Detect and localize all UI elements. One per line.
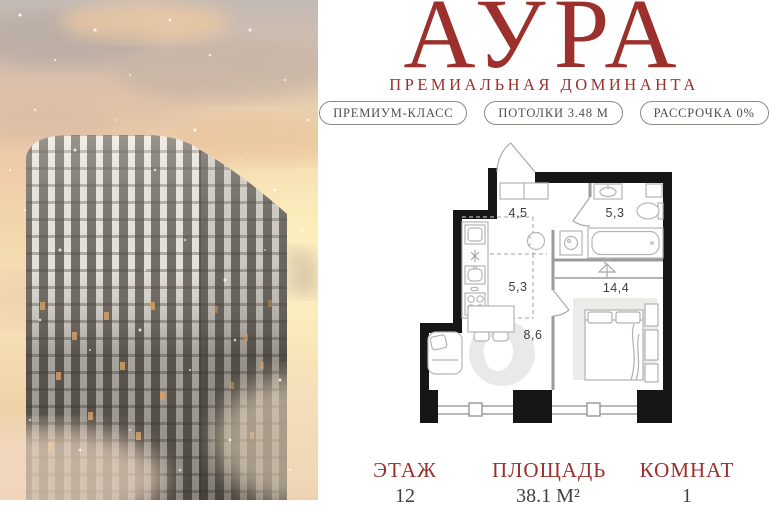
feature-badges: ПРЕМИУМ-КЛАСС ПОТОЛКИ 3.48 М РАССРОЧКА 0… [318, 101, 770, 125]
bathtub [588, 228, 663, 258]
window-left [438, 403, 513, 416]
unit-stats: ЭТАЖ 12 ПЛОЩАДЬ 38.1 М² КОМНАТ 1 [318, 458, 770, 508]
kitchen-sink [465, 266, 485, 284]
room-label-kitchen: 5,3 [509, 280, 528, 294]
bedside-shelves [645, 304, 658, 382]
duct-shaft [646, 184, 662, 197]
building-render-image [0, 0, 318, 500]
bed [585, 310, 643, 380]
stat-rooms-label: КОМНАТ [604, 458, 770, 482]
badge-ceilings: ПОТОЛКИ 3.48 М [484, 101, 622, 125]
ad-content: АУРА ПРЕМИАЛЬНАЯ ДОМИНАНТА ПРЕМИУМ-КЛАСС… [318, 0, 770, 500]
project-title: АУРА [318, 0, 770, 84]
hall-basin [528, 233, 545, 250]
bedroom-door [553, 290, 569, 316]
stat-floor: ЭТАЖ 12 [318, 458, 492, 508]
building-photo [0, 0, 318, 500]
stat-floor-value: 12 [318, 484, 492, 508]
project-subtitle: ПРЕМИАЛЬНАЯ ДОМИНАНТА [318, 75, 770, 95]
stat-rooms-value: 1 [604, 484, 770, 508]
ad-card: АУРА ПРЕМИАЛЬНАЯ ДОМИНАНТА ПРЕМИУМ-КЛАСС… [0, 0, 770, 500]
stat-area: ПЛОЩАДЬ 38.1 М² [492, 458, 604, 508]
room-label-hallway: 4,5 [509, 206, 528, 220]
bathroom-door [573, 197, 590, 226]
entry-door [497, 143, 535, 172]
washing-machine [560, 231, 582, 255]
hanger-icon [599, 259, 615, 278]
stat-rooms: КОМНАТ 1 [604, 458, 770, 508]
toilet [637, 203, 663, 219]
room-label-living: 8,6 [524, 328, 543, 342]
floor-plan: 4,5 5,3 5,3 8,6 14,4 [420, 138, 680, 428]
outer-walls [420, 168, 672, 423]
stat-area-label: ПЛОЩАДЬ [492, 458, 604, 482]
room-label-bathroom: 5,3 [606, 206, 625, 220]
window-right [552, 403, 637, 416]
room-label-bedroom: 14,4 [603, 281, 629, 295]
armchair [428, 332, 462, 374]
badge-premium-class: ПРЕМИУМ-КЛАСС [319, 101, 467, 125]
badge-installment: РАССРОЧКА 0% [640, 101, 769, 125]
stat-area-value: 38.1 М² [492, 484, 604, 508]
drawer-handle [471, 288, 478, 291]
stat-floor-label: ЭТАЖ [318, 458, 492, 482]
